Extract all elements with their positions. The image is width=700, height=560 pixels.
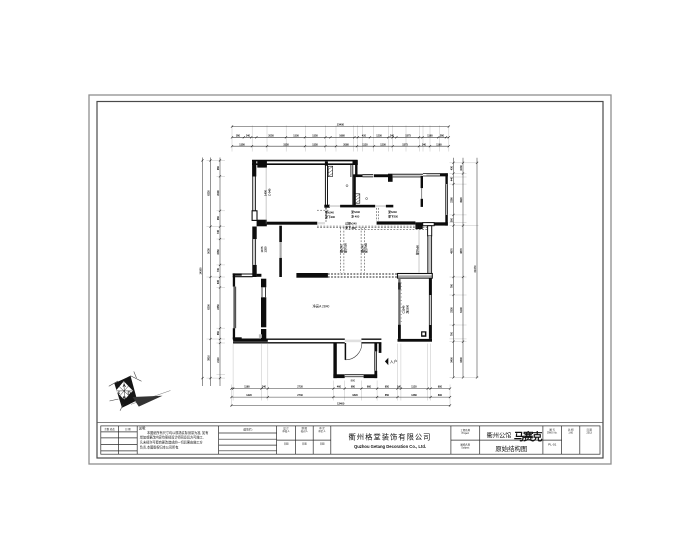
svg-text:衢州公馆: 衢州公馆 — [487, 431, 512, 439]
svg-text:C1540: C1540 — [402, 305, 406, 313]
svg-text:梁下h80: 梁下h80 — [416, 245, 420, 255]
svg-text:日期: 日期 — [320, 441, 325, 445]
svg-text:凡未经许可擅自更改造成的一切后果由施工方: 凡未经许可擅自更改造成的一切后果由施工方 — [140, 440, 203, 445]
svg-text:3350: 3350 — [283, 143, 289, 146]
svg-text:500: 500 — [450, 217, 453, 222]
svg-text:3400: 3400 — [450, 357, 453, 363]
svg-text:2730: 2730 — [297, 394, 303, 397]
svg-text:D: D — [128, 390, 132, 395]
svg-text:入户: 入户 — [390, 359, 398, 364]
svg-text:1380: 1380 — [411, 394, 417, 397]
svg-text:690: 690 — [351, 386, 356, 389]
svg-text:420: 420 — [362, 134, 367, 137]
svg-text:2450: 2450 — [217, 304, 220, 310]
svg-text:14160: 14160 — [199, 267, 202, 275]
svg-text:390: 390 — [236, 134, 241, 137]
svg-text:880: 880 — [351, 379, 356, 383]
svg-text:净高A 2840: 净高A 2840 — [313, 304, 330, 309]
svg-text:3910: 3910 — [207, 355, 210, 361]
svg-text:745: 745 — [217, 229, 220, 234]
svg-text:梁下300: 梁下300 — [388, 215, 398, 219]
svg-text:960: 960 — [217, 165, 220, 170]
svg-text:140: 140 — [397, 386, 402, 389]
svg-text:760: 760 — [450, 283, 453, 288]
svg-text:1120: 1120 — [362, 143, 368, 146]
svg-text:4870: 4870 — [460, 248, 463, 254]
svg-text:240: 240 — [246, 134, 251, 137]
svg-text:原始结构图: 原始结构图 — [495, 444, 527, 453]
svg-text:衢州格堂装饰有限公司: 衢州格堂装饰有限公司 — [349, 432, 432, 441]
svg-text:1390: 1390 — [239, 143, 245, 146]
svg-text:负责,本图版权归本公司所有.: 负责,本图版权归本公司所有. — [140, 444, 180, 449]
svg-text:240: 240 — [422, 143, 427, 146]
svg-text:净 400: 净 400 — [351, 215, 359, 219]
svg-text:660: 660 — [367, 386, 372, 389]
svg-text:C-040: C-040 — [267, 188, 271, 196]
svg-text:800: 800 — [438, 394, 443, 397]
svg-text:2110: 2110 — [217, 357, 220, 363]
svg-text:梁h240: 梁h240 — [360, 244, 364, 253]
svg-text:3400: 3400 — [460, 357, 463, 363]
svg-text:日期: 日期 — [284, 441, 289, 445]
svg-text:13400: 13400 — [337, 401, 345, 405]
svg-text:21470: 21470 — [474, 265, 477, 273]
svg-text:梁下550: 梁下550 — [343, 243, 347, 253]
svg-text:6100: 6100 — [460, 307, 463, 313]
svg-text:1120: 1120 — [411, 386, 417, 389]
svg-text:13400: 13400 — [337, 122, 345, 126]
svg-text:1475: 1475 — [260, 246, 264, 252]
svg-text:650: 650 — [217, 330, 220, 335]
svg-text:Quzhou Getang Decoration Co.,: Quzhou Getang Decoration Co., Ltd. — [354, 444, 426, 449]
svg-text:1560: 1560 — [217, 249, 220, 255]
svg-text:1350: 1350 — [264, 246, 268, 252]
svg-text:850: 850 — [385, 386, 390, 389]
svg-text:240: 240 — [390, 134, 395, 137]
svg-text:700: 700 — [450, 331, 453, 336]
svg-text:1575: 1575 — [405, 134, 411, 137]
svg-text:2050: 2050 — [268, 134, 274, 137]
svg-text:430: 430 — [450, 165, 453, 170]
svg-text:800: 800 — [438, 386, 443, 389]
svg-text:净2300: 净2300 — [405, 304, 409, 313]
svg-text:梁h240: 梁h240 — [340, 244, 344, 253]
svg-text:2730: 2730 — [297, 386, 303, 389]
svg-text:梁h240: 梁h240 — [351, 210, 360, 214]
svg-text:说明:: 说明: — [139, 426, 146, 431]
svg-text:审定人: 审定人 — [318, 429, 326, 433]
svg-text:审核人: 审核人 — [282, 429, 290, 433]
svg-text:梁下300: 梁下300 — [325, 215, 335, 219]
svg-text:1030: 1030 — [460, 165, 463, 171]
svg-text:本图纸所有尺寸均以现场实际测量为准, 如有: 本图纸所有尺寸均以现场实际测量为准, 如有 — [147, 430, 208, 435]
svg-text:590: 590 — [440, 134, 445, 137]
svg-text:马赛克: 马赛克 — [514, 430, 543, 443]
svg-text:1300: 1300 — [293, 134, 299, 137]
svg-text:增加或更改内容均需经设计师同意后方可施工,: 增加或更改内容均需经设计师同意后方可施工, — [140, 435, 204, 440]
svg-text:1575: 1575 — [402, 143, 408, 146]
svg-text:校对人: 校对人 — [301, 429, 309, 433]
svg-text:730: 730 — [217, 267, 220, 272]
svg-text:1820: 1820 — [352, 394, 358, 397]
svg-text:1180: 1180 — [244, 386, 250, 389]
svg-text:DWG No.: DWG No. — [547, 432, 558, 435]
svg-text:过梁h240: 过梁h240 — [345, 221, 357, 225]
svg-text:1200: 1200 — [376, 134, 382, 137]
svg-text:1420: 1420 — [246, 394, 252, 397]
svg-text:240: 240 — [262, 386, 267, 389]
svg-text:4870: 4870 — [450, 248, 453, 254]
svg-text:(会签栏): (会签栏) — [243, 428, 253, 432]
svg-text:梁下 400: 梁下 400 — [345, 226, 356, 230]
svg-text:2090: 2090 — [217, 190, 220, 196]
svg-text:440: 440 — [450, 176, 453, 181]
svg-text:PL-01: PL-01 — [548, 443, 557, 447]
svg-text:2280: 2280 — [450, 197, 453, 203]
svg-text:5030: 5030 — [207, 248, 210, 254]
svg-text:1:60: 1:60 — [568, 432, 573, 435]
svg-text:Subject: Subject — [461, 447, 469, 450]
svg-text:梁h240: 梁h240 — [325, 210, 334, 214]
svg-text:次数 修改: 次数 修改 — [104, 427, 115, 431]
svg-text:6200: 6200 — [207, 304, 210, 310]
svg-text:1180: 1180 — [436, 143, 442, 146]
svg-text:梁下550: 梁下550 — [364, 243, 368, 253]
svg-text:1400: 1400 — [264, 190, 268, 196]
svg-text:Project: Project — [462, 432, 470, 435]
svg-text:960: 960 — [217, 215, 220, 220]
svg-text:2080: 2080 — [343, 143, 349, 146]
svg-text:日 期: 日 期 — [125, 427, 131, 431]
svg-text:c: c — [118, 390, 121, 395]
svg-text:460: 460 — [337, 386, 342, 389]
svg-text:日期: 日期 — [302, 441, 307, 445]
svg-text:635: 635 — [217, 279, 220, 284]
svg-text:4920: 4920 — [460, 197, 463, 203]
svg-text:2330: 2330 — [450, 307, 453, 313]
svg-text:850: 850 — [385, 394, 390, 397]
svg-text:6220: 6220 — [207, 190, 210, 196]
svg-text:1350: 1350 — [312, 134, 318, 137]
svg-text:1350: 1350 — [312, 143, 318, 146]
svg-text:1200: 1200 — [380, 143, 386, 146]
svg-text:2013: 2013 — [587, 432, 593, 435]
svg-text:1180: 1180 — [427, 134, 433, 137]
svg-text:A: A — [123, 383, 127, 388]
svg-text:梁h240: 梁h240 — [388, 210, 397, 214]
svg-text:1680: 1680 — [339, 134, 345, 137]
